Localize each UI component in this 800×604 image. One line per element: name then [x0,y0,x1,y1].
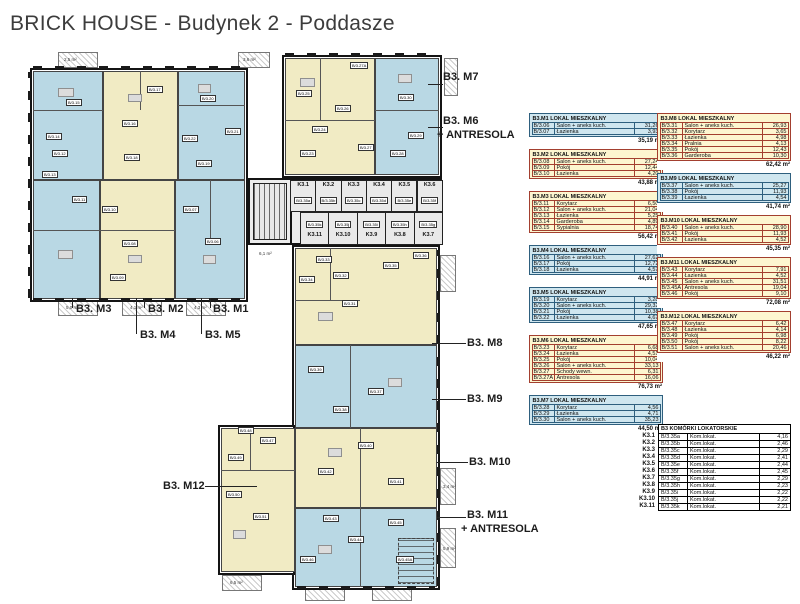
unit-table-m1: B3.M1 LOKAL MIESZKALNYB/3.06Salon + anek… [529,113,663,146]
unit-tables-column-2: B3.M8 LOKAL MIESZKALNYB/3.31Salon + anek… [657,113,791,365]
room-area: 27,62 [635,255,660,260]
room-number-chip: B/3.35b [320,197,338,204]
room-number-chip: B/3.35d [370,197,388,204]
room-area: 4,52 [763,237,788,242]
storage-label: K3.10 [329,231,356,239]
room-number-chip: B/3.44 [348,536,364,543]
furniture [128,94,142,102]
room-number-chip: B/3.50 [226,491,242,498]
room-number: B/3.35 [661,147,683,152]
room-number-chip: B/3.45 [388,519,404,526]
unit-total-area: 72,08 m² [657,299,791,308]
room-area: 6,50 [635,201,660,206]
room-area: 4,89 [635,219,660,224]
room-name: Salon + aneks kuch. [555,255,635,260]
unit-total-area: 43,88 m² [529,179,663,188]
room-number: B/3.23 [533,345,555,350]
storage-row: K3.11B/3.35kKom.lokat.2,21 [632,503,791,511]
room-number-chip: B/3.07 [183,206,199,213]
room-number: B/3.47 [661,321,683,326]
storage-label: K3.4 [367,181,391,189]
room-row: B/3.43Korytarz7,91 [660,266,789,273]
leader-line [437,462,468,463]
room-number: B/3.48 [661,327,683,332]
storage-cell-k3-10: B/3.35jK3.10 [328,212,357,245]
room-number: B/3.09 [533,165,555,170]
room-name: Pokój [555,309,635,314]
leader-line [432,399,466,400]
windows [285,53,439,56]
room-area: 12,43 [763,147,788,152]
room-number: B/3.17 [533,261,555,266]
room-number: B/3.34 [661,141,683,146]
room-name: Salon + aneks kuch. [683,345,763,350]
room-name: Łazienka [683,327,763,332]
room-area: 3,93 [635,129,660,134]
unit-total-area: 56,42 m² [529,233,663,242]
room-area: 5,25 [635,213,660,218]
room-row: B/3.18Łazienka4,57 [532,266,661,273]
room-name: Pokój [683,333,763,338]
area-label: 2,5 m² [64,57,77,62]
storage-cell-k3-1: K3.1B/3.35a [290,180,316,212]
room-row: B/3.41Pokój11,93 [660,230,789,237]
room-row: B/3.16Salon + aneks kuch.27,62 [532,254,661,261]
room-number-chip: B/3.42 [318,468,334,475]
unit-label-m6: B3. M6 [443,115,478,127]
room-row: B/3.33Łazienka4,98 [660,134,789,141]
room-name: Łazienka [555,129,635,134]
unit-table-m9: B3.M9 LOKAL MIESZKALNYB/3.37Salon + anek… [657,173,791,212]
room-number: B/3.22 [533,315,555,320]
room-area-m3-lower [33,180,100,299]
room-number: B/3.51 [661,345,683,350]
room-name: Pokój [683,147,763,152]
furniture [58,88,74,97]
room-row: B/3.44Łazienka4,52 [660,272,789,279]
room-area: 11,93 [763,189,788,194]
room-area: 12,72 [635,261,660,266]
unit-label-m4: B3. M4 [140,329,175,341]
room-area: 6,31 [635,369,660,374]
room-area: 4,51 [635,351,660,356]
room-row: B/3.49Pokój6,98 [660,332,789,339]
furniture [318,545,332,554]
unit-table-m6: B3.M6 LOKAL MIESZKALNYB/3.23Korytarz6,68… [529,335,663,392]
room-number: B/3.44 [661,273,683,278]
room-number: B/3.10 [533,171,555,176]
unit-table-box: B3.M9 LOKAL MIESZKALNYB/3.37Salon + anek… [657,173,791,203]
unit-label-m8: B3. M8 [467,337,502,349]
room-name: Pokój [555,165,635,170]
room-number-chip: B/3.35h [391,221,409,228]
room-number-chip: B/3.15 [66,99,82,106]
room-row: B/3.06Salon + aneks kuch.31,26 [532,122,661,129]
partition [360,428,361,508]
windows [28,72,31,298]
room-row: B/3.45AAntresola19,04 [660,284,789,291]
balcony [440,255,456,292]
storage-label: K3.6 [418,181,442,189]
room-name: Pokój [683,231,763,236]
room-area: 16,06 [635,375,660,380]
room-area: 10,30 [763,153,788,158]
unit-table-m4: B3.M4 LOKAL MIESZKALNYB/3.16Salon + anek… [529,245,663,284]
unit-label-m6-antresola: + ANTRESOLA [437,129,515,141]
partition [320,58,321,120]
room-row: B/3.27Schody wewn.6,31 [532,368,661,375]
room-name: Salon + aneks kuch. [555,363,635,368]
room-number-chip: B/3.20 [200,95,216,102]
room-row: B/3.20Salon + aneks kuch.29,32 [532,302,661,309]
room-number-chip: B/3.08 [122,240,138,247]
room-number-chip: B/3.23 [300,150,316,157]
room-number-chip: B/3.36 [413,252,429,259]
unit-total-area: 44,91 m² [529,275,663,284]
room-number-chip: B/3.35g [419,221,437,228]
room-number-chip: B/3.49 [228,454,244,461]
storage-label: K3.5 [392,181,416,189]
unit-total-area: 41,74 m² [657,203,791,212]
furniture [388,378,402,387]
room-row: B/3.31Salon + aneks kuch.26,93 [660,122,789,129]
room-number-chip: B/3.30 [398,94,414,101]
room-number-chip: B/3.39 [308,366,324,373]
partition [350,345,351,428]
unit-label-m9: B3. M9 [467,393,502,405]
room-name: Łazienka [555,171,635,176]
room-number-chip: B/3.33 [316,256,332,263]
unit-table-m10: B3.M10 LOKAL MIESZKALNYB/3.40Salon + ane… [657,215,791,254]
room-area: 3,28 [635,297,660,302]
furniture [198,84,211,93]
room-area: 12,44 [635,165,660,170]
windows [437,250,440,586]
storage-cell-k3-9: B/3.35iK3.9 [357,212,386,245]
room-number: B/3.27 [533,369,555,374]
room-name: Salon + aneks kuch. [555,123,635,128]
unit-table-box: B3.M2 LOKAL MIESZKALNYB/3.08Salon + anek… [529,149,663,179]
unit-label-m5: B3. M5 [205,329,240,341]
room-name: Salon + aneks kuch. [555,417,635,422]
room-name: Salon + aneks kuch. [683,183,763,188]
leader-line [428,127,443,128]
room-row: B/3.11Korytarz6,50 [532,200,661,207]
room-number-chip: B/3.35 [383,262,399,269]
room-area: 3,65 [763,129,788,134]
room-row: B/3.26Salon + aneks kuch.33,13 [532,362,661,369]
room-name: Łazienka [555,213,635,218]
partition [33,230,100,231]
room-number-chip: B/3.43 [323,515,339,522]
room-row: B/3.28Korytarz4,56 [532,404,661,411]
room-number: B/3.31 [661,123,683,128]
unit-label-m2: B3. M2 [148,303,183,315]
room-name: Pokój [683,189,763,194]
room-number: B/3.28 [533,405,555,410]
room-area: 4,52 [763,273,788,278]
unit-table-m2: B3.M2 LOKAL MIESZKALNYB/3.08Salon + anek… [529,149,663,188]
storage-label: K3.3 [342,181,366,189]
room-row: B/3.07Łazienka3,93 [532,128,661,135]
unit-table-box: B3.M3 LOKAL MIESZKALNYB/3.11Korytarz6,50… [529,191,663,233]
room-name: Łazienka [683,195,763,200]
room-row: B/3.35Pokój12,43 [660,146,789,153]
room-number-chip: B/3.35i [363,221,379,228]
storage-label: K3.2 [316,181,340,189]
room-area: 35,23 [635,417,660,422]
room-number: B/3.13 [533,213,555,218]
room-number-chip: B/3.14 [46,133,62,140]
room-name: Salon + aneks kuch. [555,207,635,212]
room-number: B/3.26 [533,363,555,368]
room-number: B/3.07 [533,129,555,134]
room-number-chip: B/3.24 [312,126,328,133]
furniture [128,255,142,263]
room-area-m6 [285,58,375,175]
room-name: Salon + aneks kuch. [555,159,635,164]
room-name: Łazienka [555,267,635,272]
room-area: 4,13 [763,141,788,146]
room-area: 31,26 [635,123,660,128]
room-name: Antresola [555,375,635,380]
area-label: 4,3 m² [194,305,207,310]
room-row: B/3.08Salon + aneks kuch.27,24 [532,158,661,165]
room-name: Garderoba [555,219,635,224]
furniture [58,250,73,259]
room-area: 29,32 [635,303,660,308]
room-name: Łazienka [555,351,635,356]
area-label: 6,5 m² [230,580,243,585]
room-row: B/3.39Łazienka4,54 [660,194,789,201]
room-number: B/3.08 [533,159,555,164]
room-row: B/3.13Łazienka5,25 [532,212,661,219]
storage-cell-k3-11: B/3.35kK3.11 [300,212,329,245]
room-row: B/3.46Pokój9,10 [660,290,789,297]
partition [210,180,211,240]
room-area: 19,04 [763,285,788,290]
room-number-chip: B/3.10 [102,206,118,213]
room-number: B/3.45A [661,285,683,290]
room-number-chip: B/3.34 [299,276,315,283]
room-row: B/3.36Garderoba10,30 [660,152,789,159]
room-number-chip: B/3.18 [124,154,140,161]
storage-label: K3.11 [301,231,328,239]
room-number-chip: B/3.09 [110,274,126,281]
partition [250,428,251,470]
room-number-chip: B/3.13 [42,171,58,178]
leader-line [437,517,466,518]
room-row: B/3.21Pokój10,38 [532,308,661,315]
staircase [253,183,287,240]
room-area: 4,67 [635,315,660,320]
partition [375,110,439,111]
partition [100,230,175,231]
storage-cell-k3-8: B/3.35hK3.8 [385,212,414,245]
floor-plan-page: BRICK HOUSE - Budynek 2 - Poddasze [0,0,800,604]
room-area: 8,22 [763,339,788,344]
room-number: B/3.45 [661,279,683,284]
room-row: B/3.50Pokój8,22 [660,338,789,345]
unit-total-area: 47,65 m² [529,323,663,332]
partition [33,110,103,111]
room-number-chip: B/3.48 [238,427,254,434]
room-name: Korytarz [683,267,763,272]
room-number: B/3.21 [533,309,555,314]
room-number-chip: B/3.35f [421,197,438,204]
room-number-chip: B/3.45A [396,556,414,563]
room-row: B/3.45Salon + aneks kuch.31,51 [660,278,789,285]
furniture [203,255,216,264]
furniture [398,74,412,83]
room-number: B/3.50 [661,339,683,344]
area-label: 3,6 m² [243,57,256,62]
room-area: 28,90 [763,225,788,230]
room-name: Korytarz [683,129,763,134]
room-name: Korytarz [683,321,763,326]
room-row: B/3.24Łazienka4,51 [532,350,661,357]
room-number-chip: B/3.28 [390,150,406,157]
room-number: B/3.19 [533,297,555,302]
room-area: 6,42 [763,321,788,326]
room-number: B/3.14 [533,219,555,224]
room-number-chip: B/3.35e [395,197,413,204]
furniture [233,530,246,539]
room-number-chip: B/3.35j [335,221,351,228]
storage-cell-k3-4: K3.4B/3.35d [366,180,392,212]
room-number: B/3.24 [533,351,555,356]
room-area: 18,74 [635,225,660,230]
room-row: B/3.42Łazienka4,52 [660,236,789,243]
room-row: B/3.29Łazienka4,71 [532,410,661,417]
room-number-chip: B/3.27A [350,62,368,69]
storage-row-key: K3.11 [632,503,658,511]
area-label: 4,1 m² [130,305,143,310]
room-number: B/3.43 [661,267,683,272]
storage-label: K3.1 [291,181,315,189]
room-number-chip: B/3.35c [345,197,363,204]
room-number: B/3.32 [661,129,683,134]
unit-total-area: 76,73 m² [529,383,663,392]
room-row: B/3.48Łazienka4,14 [660,326,789,333]
storage-cell-k3-3: K3.3B/3.35c [341,180,367,212]
windows [33,66,243,69]
partition [140,71,141,110]
room-row: B/3.10Łazienka4,20 [532,170,661,177]
unit-label-m10: B3. M10 [469,456,511,468]
unit-table-box: B3.M6 LOKAL MIESZKALNYB/3.23Korytarz6,68… [529,335,663,383]
unit-table-box: B3.M1 LOKAL MIESZKALNYB/3.06Salon + anek… [529,113,663,137]
leader-line [432,343,466,344]
room-number: B/3.49 [661,333,683,338]
room-name: Pokój [683,339,763,344]
room-number-chip: B/3.35a [294,197,312,204]
furniture [318,312,333,321]
unit-total-area: 46,22 m² [657,353,791,362]
unit-table-m3: B3.M3 LOKAL MIESZKALNYB/3.11Korytarz6,50… [529,191,663,242]
unit-table-m8: B3.M8 LOKAL MIESZKALNYB/3.31Salon + anek… [657,113,791,170]
unit-label-m3: B3. M3 [76,303,111,315]
room-area-m10 [295,428,437,508]
unit-table-box: B3.M5 LOKAL MIESZKALNYB/3.19Korytarz3,28… [529,287,663,323]
room-area: 11,93 [763,231,788,236]
unit-table-box: B3.M8 LOKAL MIESZKALNYB/3.31Salon + anek… [657,113,791,161]
storage-room-area: 2,21 [759,503,791,511]
room-area: 9,10 [763,291,788,296]
room-name: Salon + aneks kuch. [683,225,763,230]
room-name: Pokój [683,291,763,296]
room-number-chip: B/3.26 [335,105,351,112]
unit-total-area: 45,35 m² [657,245,791,254]
room-area: 27,24 [635,159,660,164]
unit-table-box: B3.M10 LOKAL MIESZKALNYB/3.40Salon + ane… [657,215,791,245]
room-name: Korytarz [555,201,635,206]
room-name: Pokój [555,357,635,362]
unit-label-m12: B3. M12 [163,480,205,492]
room-area: 25,27 [763,183,788,188]
room-number: B/3.18 [533,267,555,272]
room-name: Łazienka [683,273,763,278]
room-number-chip: B/3.16 [122,120,138,127]
leader-line [144,298,145,308]
room-name: Salon + aneks kuch. [555,303,635,308]
room-number-chip: B/3.40 [358,442,374,449]
unit-total-area: 62,42 m² [657,161,791,170]
storage-cell-k3-7: B/3.35gK3.7 [414,212,443,245]
room-area: 4,98 [763,135,788,140]
furniture [328,448,342,457]
room-row: B/3.37Salon + aneks kuch.25,27 [660,182,789,189]
room-number: B/3.20 [533,303,555,308]
room-area: 4,14 [763,327,788,332]
room-area: 4,57 [635,267,660,272]
unit-table-m5: B3.M5 LOKAL MIESZKALNYB/3.19Korytarz3,28… [529,287,663,332]
room-area: 20,46 [763,345,788,350]
room-area: 4,20 [635,171,660,176]
room-name: Salon + aneks kuch. [683,123,763,128]
room-name: Łazienka [555,411,635,416]
unit-label-m1: B3. M1 [213,303,248,315]
room-number: B/3.46 [661,291,683,296]
area-label: 6,1 m² [259,251,272,256]
room-number-chip: B/3.31 [342,300,358,307]
storage-cell-k3-5: K3.5B/3.35e [391,180,417,212]
leader-line [428,84,443,85]
leader-line [201,298,202,334]
partition [221,470,295,471]
room-number: B/3.39 [661,195,683,200]
unit-label-m11: B3. M11 [467,509,508,521]
room-name: Schody wewn. [555,369,635,374]
windows [297,586,435,589]
room-number-chip: B/3.21 [225,128,241,135]
room-row: B/3.17Pokój12,72 [532,260,661,267]
room-area: 4,54 [763,195,788,200]
room-number-chip: B/3.19 [196,160,212,167]
room-area: 26,93 [763,123,788,128]
furniture [300,78,315,87]
room-number: B/3.37 [661,183,683,188]
storage-units-table: B3 KOMÓRKI LOKATORSKIEK3.1B/3.35aKom.lok… [632,424,791,511]
room-number: B/3.40 [661,225,683,230]
room-row: B/3.25Pokój10,04 [532,356,661,363]
room-row: B/3.14Garderoba4,89 [532,218,661,225]
storage-cell-k3-2: K3.2B/3.35b [315,180,341,212]
room-number: B/3.25 [533,357,555,362]
storage-cell-k3-6: K3.6B/3.35f [417,180,443,212]
room-row: B/3.40Salon + aneks kuch.28,90 [660,224,789,231]
room-number-chip: B/3.17 [147,86,163,93]
